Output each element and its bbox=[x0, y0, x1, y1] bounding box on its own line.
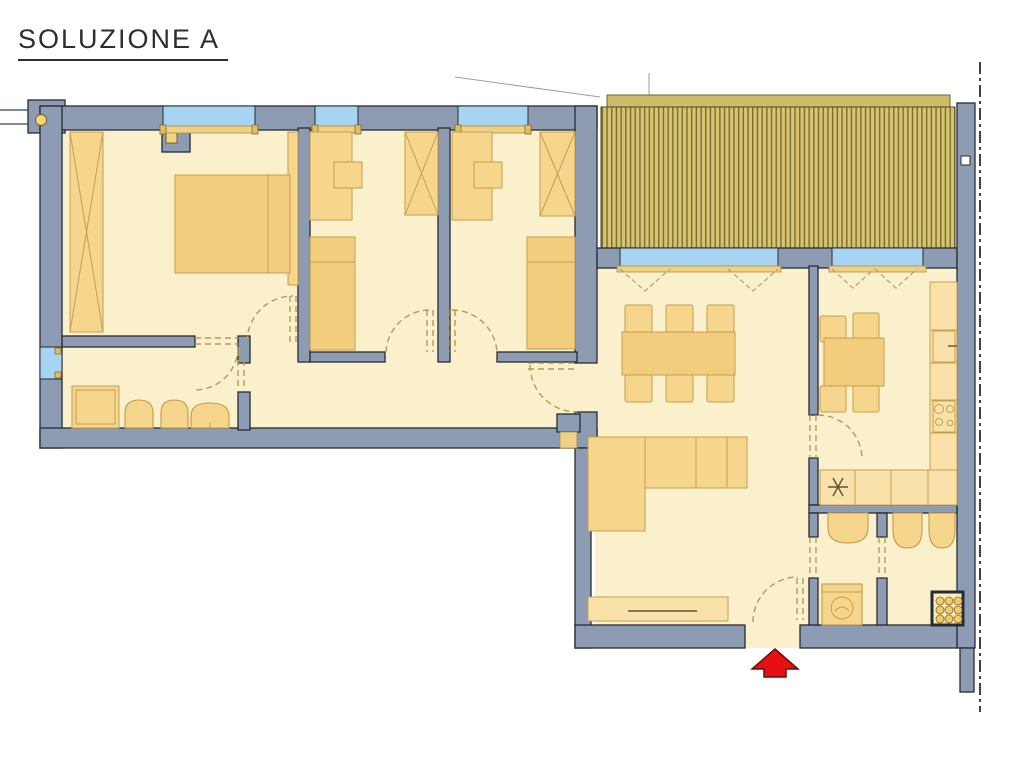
partition-master-bed2 bbox=[298, 128, 310, 362]
entrance-arrow-icon bbox=[752, 649, 798, 677]
bathroom2-west-wall-lower bbox=[877, 578, 887, 625]
chair bbox=[474, 162, 502, 188]
window-sill bbox=[160, 126, 258, 133]
chair bbox=[334, 162, 362, 188]
leader-lines bbox=[455, 73, 649, 97]
sill-tick bbox=[55, 372, 61, 378]
laundry-west-wall-stub bbox=[809, 513, 818, 537]
bedroom2-south-wall bbox=[310, 352, 385, 362]
floor-plan bbox=[0, 0, 1024, 768]
kitchen-window bbox=[832, 248, 923, 268]
sill-tick bbox=[55, 348, 61, 354]
bidet-icon bbox=[161, 400, 188, 428]
leader-line bbox=[455, 77, 600, 97]
day-wing-west-wall-upper bbox=[575, 106, 597, 363]
terrace bbox=[601, 95, 955, 248]
dining-chair bbox=[666, 305, 693, 332]
kitchen-chair bbox=[853, 313, 879, 339]
hall-niche bbox=[560, 432, 577, 448]
single-bed bbox=[310, 237, 355, 350]
south-wall-right bbox=[800, 625, 957, 648]
living-french-window bbox=[620, 248, 778, 268]
dining-table bbox=[622, 332, 735, 375]
dining-chair bbox=[666, 375, 693, 402]
column-marker-icon bbox=[36, 115, 47, 126]
dining-chair bbox=[625, 375, 652, 402]
column-marker-icon bbox=[166, 132, 177, 143]
kitchen-table bbox=[824, 338, 884, 386]
sill-tick bbox=[252, 125, 258, 134]
sill-tick bbox=[355, 125, 361, 134]
sill-tick bbox=[525, 125, 531, 134]
dining-chair bbox=[625, 305, 652, 332]
east-wall bbox=[957, 103, 975, 648]
master-window bbox=[163, 106, 255, 127]
kitchen-chair bbox=[853, 386, 879, 412]
laundry-west-wall-lower bbox=[809, 578, 818, 625]
bidet-icon bbox=[929, 513, 955, 548]
kitchen-chair bbox=[820, 386, 846, 412]
master-south-wall bbox=[62, 336, 195, 347]
tv-sideboard bbox=[588, 597, 728, 621]
window-sill bbox=[617, 266, 781, 272]
wall-vent-marker bbox=[961, 156, 970, 165]
bathroom1-east-wall bbox=[238, 392, 250, 430]
hall-pillar bbox=[557, 414, 580, 432]
night-wing-south-wall bbox=[40, 428, 597, 448]
service-rooms-north-wall bbox=[809, 505, 957, 513]
dining-chair bbox=[707, 305, 734, 332]
page-title: SOLUZIONE A bbox=[18, 24, 228, 61]
bathroom2-west-wall-stub bbox=[877, 513, 887, 537]
kitchen-west-wall-upper bbox=[809, 266, 818, 415]
bedroom3-south-wall bbox=[497, 352, 577, 362]
single-bed bbox=[527, 237, 575, 349]
laundry-sink-icon bbox=[828, 513, 868, 543]
terrace-edge-band bbox=[607, 95, 950, 107]
bedroom2-window bbox=[315, 106, 358, 127]
terrace-decking bbox=[601, 107, 955, 248]
shower-drain-dots bbox=[936, 597, 962, 623]
shower bbox=[72, 386, 119, 428]
toilet-icon bbox=[125, 400, 153, 428]
double-bed bbox=[175, 175, 290, 273]
bedroom3-window bbox=[458, 106, 528, 127]
hall-door-gap-floor bbox=[575, 363, 597, 412]
kitchen-west-wall-lower bbox=[809, 458, 818, 505]
east-wall-stub bbox=[960, 648, 974, 692]
sill-tick bbox=[160, 125, 166, 134]
partition-bed2-bed3 bbox=[438, 128, 450, 362]
toilet-icon bbox=[893, 513, 922, 548]
west-wall bbox=[40, 106, 62, 448]
entrance-recess-floor bbox=[745, 618, 800, 648]
dining-chair bbox=[707, 375, 734, 402]
kitchen-counter-east bbox=[930, 282, 957, 470]
south-wall-left bbox=[575, 625, 745, 648]
bathroom1-wall-stub bbox=[238, 336, 250, 363]
